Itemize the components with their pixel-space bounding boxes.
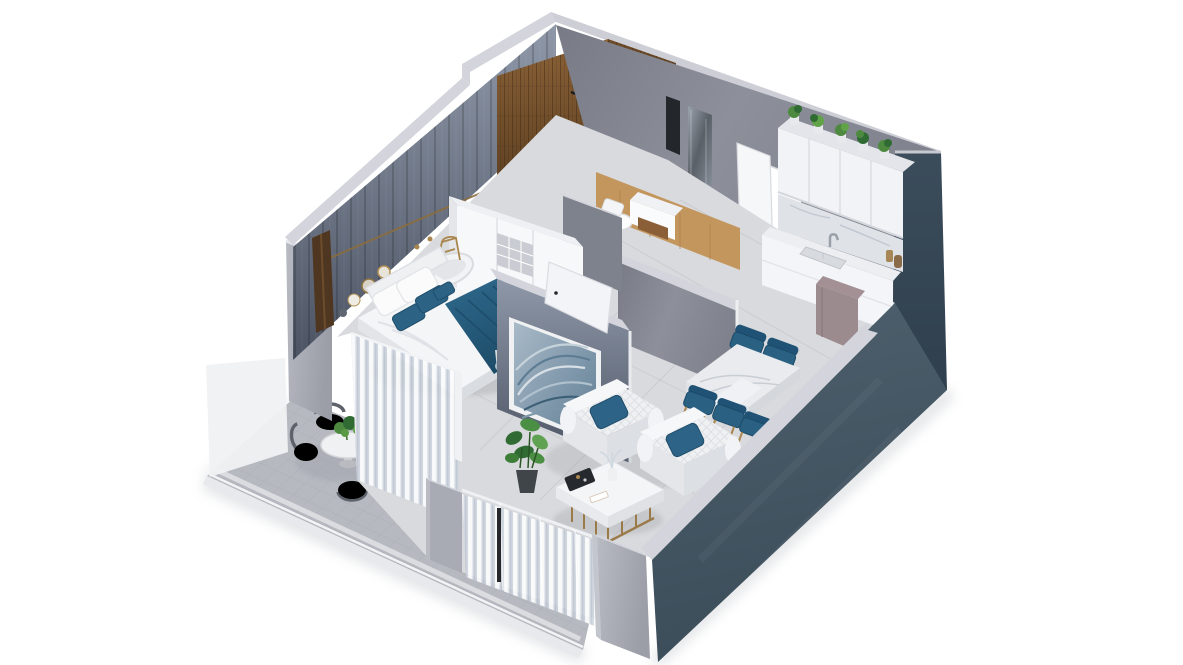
sofa-arm: [637, 434, 653, 462]
black-floor-pole: [497, 508, 501, 582]
sofa-arm: [560, 406, 576, 434]
patio-table-base: [339, 460, 357, 468]
floor-plan-render: [0, 0, 1183, 665]
window-corner-post: [455, 370, 462, 462]
apartment-3d-plan: [0, 0, 1183, 665]
wall-niche: [666, 96, 680, 155]
low-stub-wall: [426, 478, 462, 573]
bedroom-door-handle: [554, 291, 558, 295]
patio-chair-seat: [294, 443, 318, 461]
